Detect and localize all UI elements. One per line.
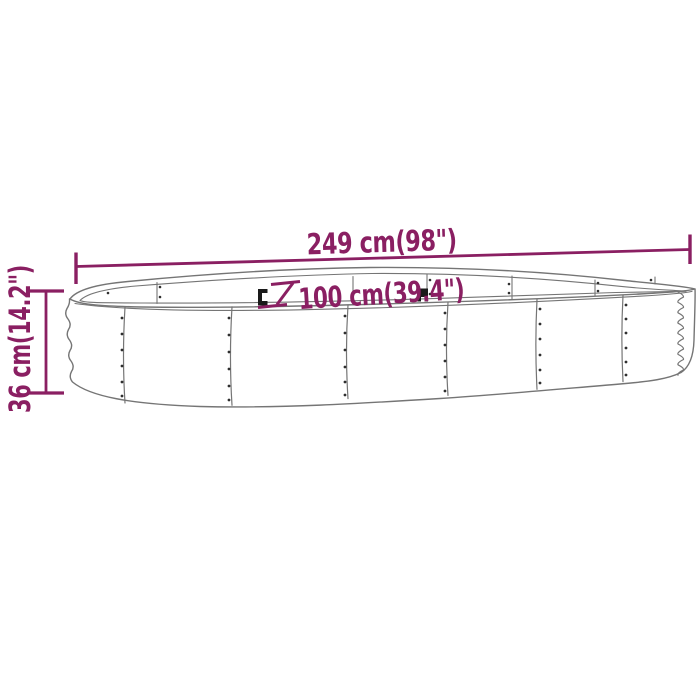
garden-bed-diagram-svg: 249 cm(98") 100 cm(39.4") 36 cm(14.2") bbox=[0, 0, 700, 700]
product-dimension-diagram: 249 cm(98") 100 cm(39.4") 36 cm(14.2") bbox=[0, 0, 700, 700]
height-dimension-label: 36 cm(14.2") bbox=[3, 265, 37, 413]
length-dimension-label: 249 cm(98") bbox=[306, 223, 457, 262]
